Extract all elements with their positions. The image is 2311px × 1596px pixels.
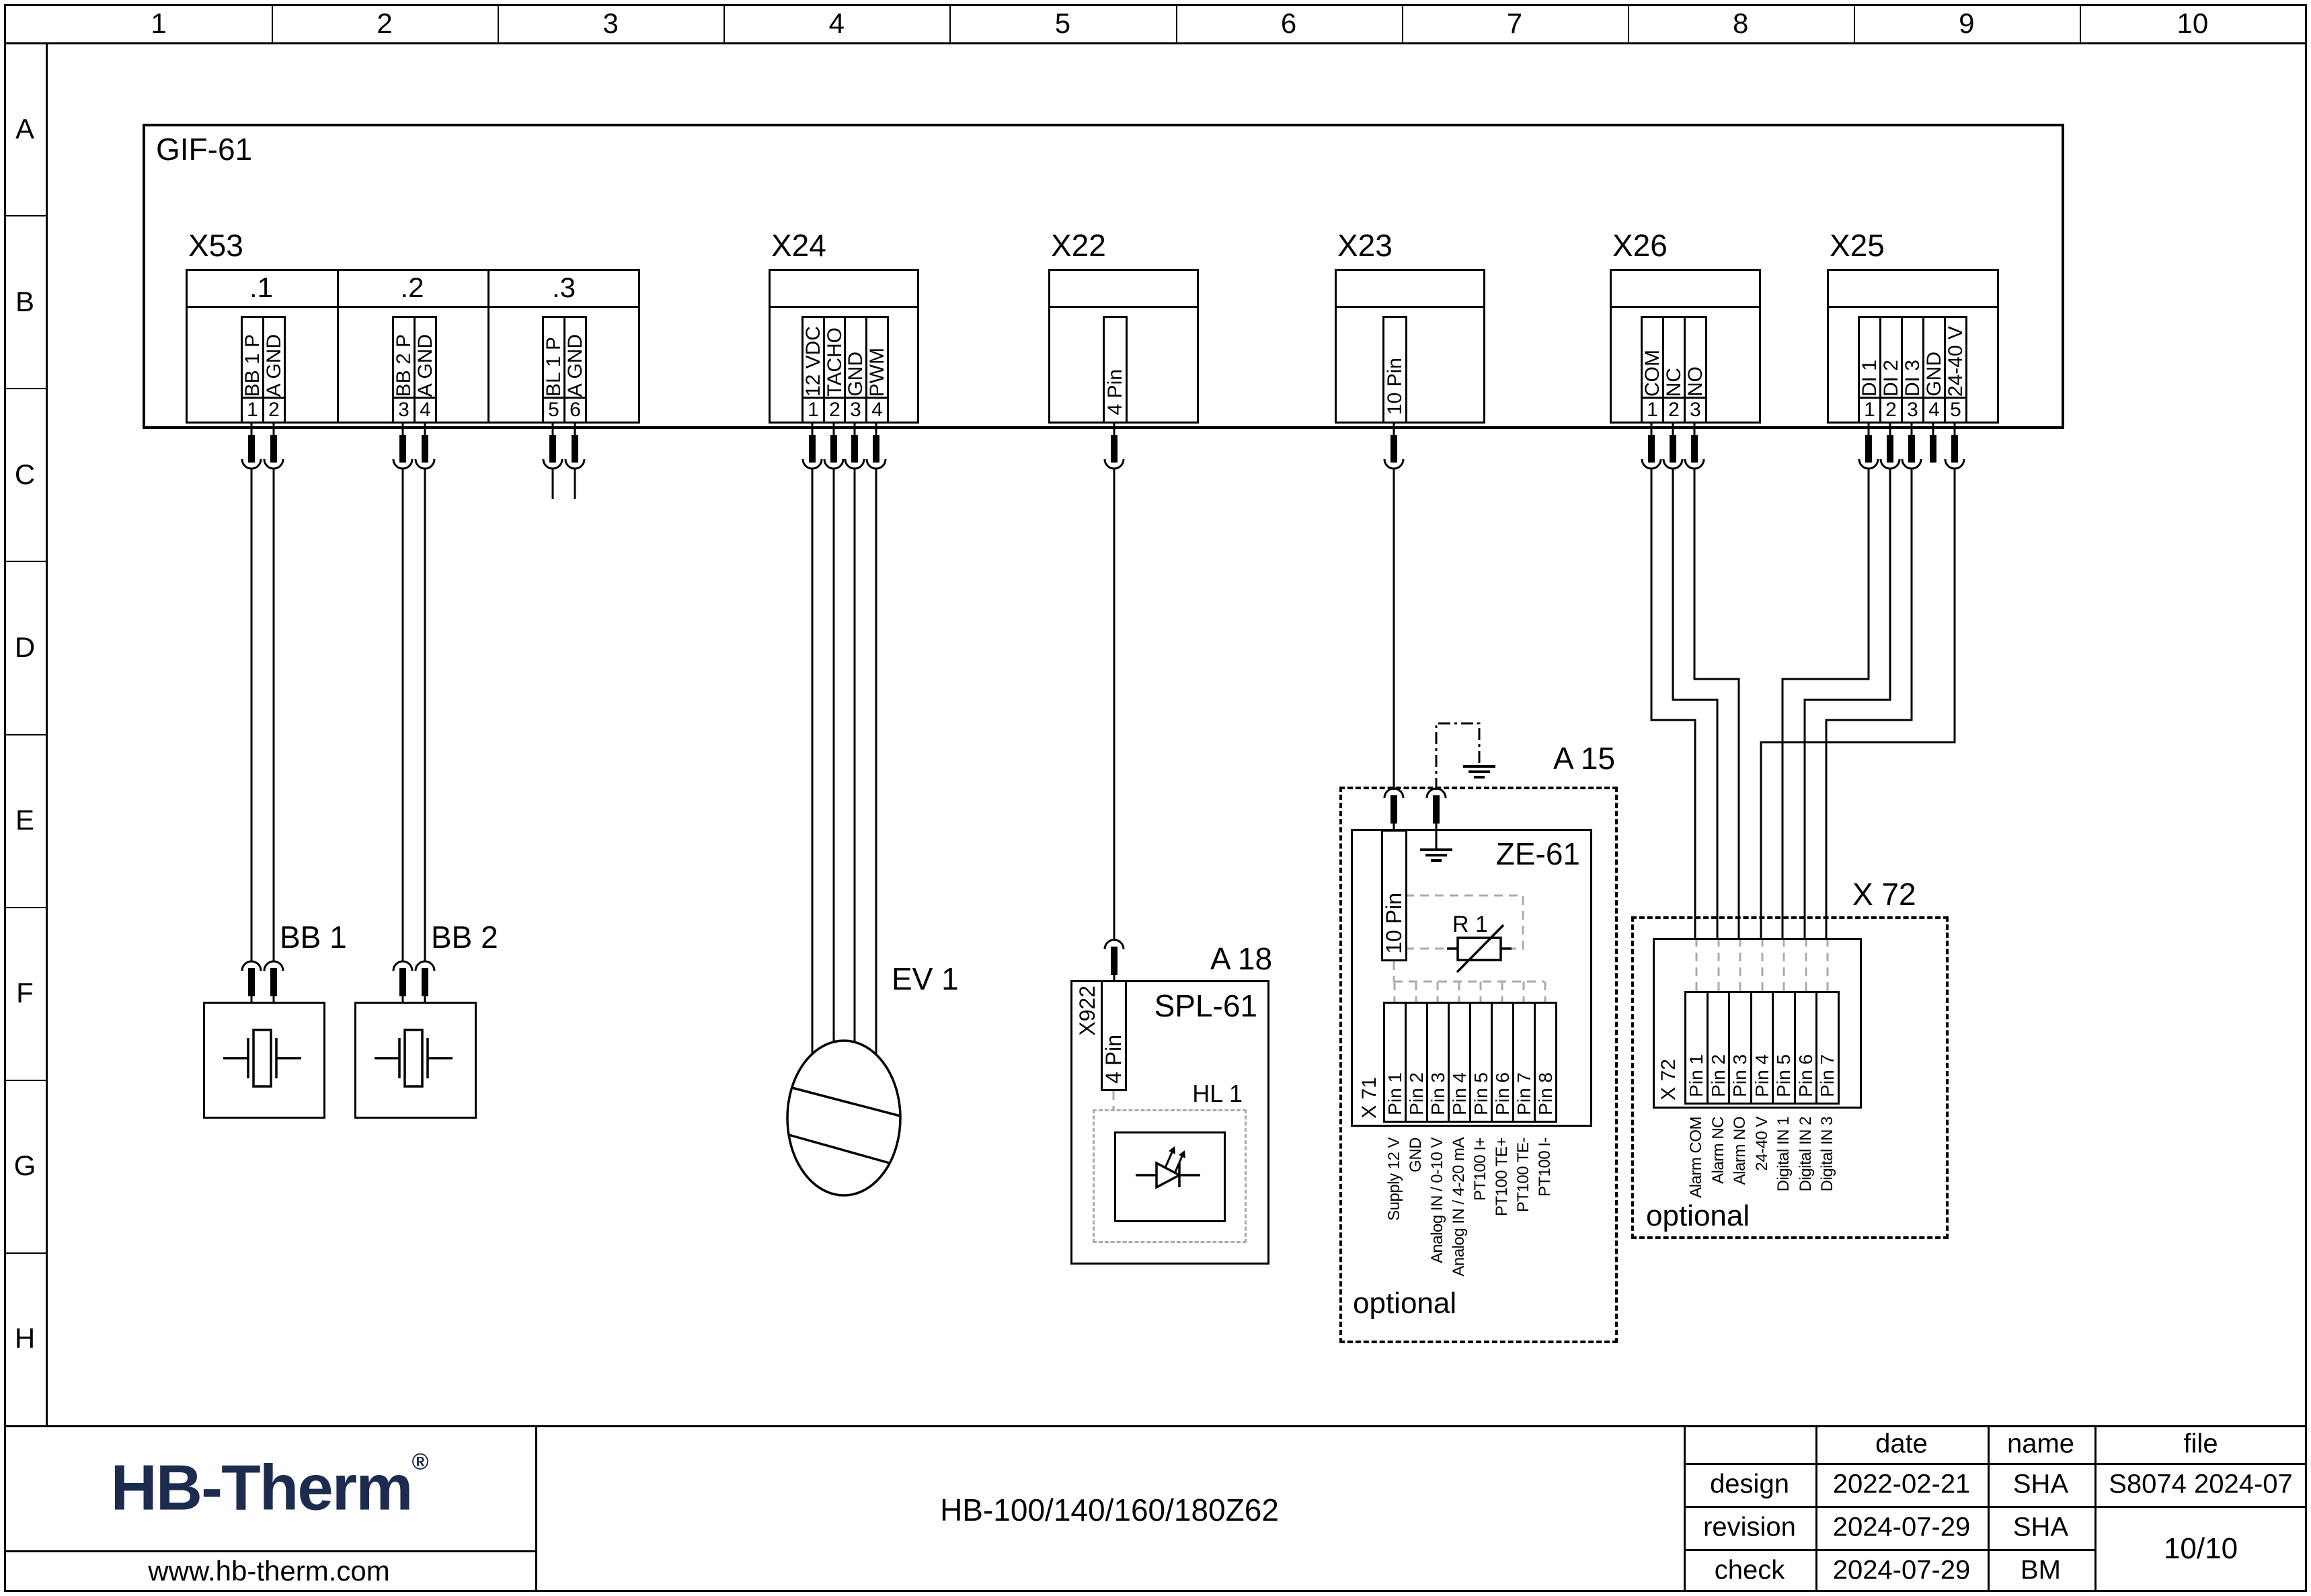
connector-X25-pin: DI 11 — [1858, 316, 1881, 424]
pin-label: Pin 8 — [1536, 1072, 1555, 1115]
connector-X24-pin: PWM4 — [865, 316, 889, 424]
pin-label-wrap: BB 1 P — [243, 318, 262, 397]
x72-connector-label: X 72 — [1657, 1059, 1680, 1101]
pin-label: Pin 7 — [1817, 1054, 1838, 1097]
pin-number: 5 — [1946, 397, 1965, 422]
drawing-title: HB-100/140/160/180Z62 — [940, 1492, 1279, 1528]
connector-X24-pin: 12 VDC1 — [801, 316, 825, 424]
row-design-name: SHA — [2013, 1470, 2068, 1500]
connector-X22-pin: 4 Pin — [1103, 316, 1128, 424]
connector-X25-pin: DI 33 — [1901, 316, 1924, 424]
column-ruler-cell: 5 — [949, 4, 1175, 42]
pin-label-wrap: Pin 3 — [1428, 1004, 1448, 1121]
pin-label-wrap: GND — [1924, 318, 1944, 397]
pin-label-wrap: Pin 2 — [1407, 1004, 1426, 1121]
pin-number: 2 — [1881, 397, 1901, 422]
row-ruler-cell: G — [4, 1080, 46, 1252]
connector-header-divider — [1048, 306, 1199, 308]
connector-X22-label: X22 — [1051, 229, 1106, 262]
x71-pin: Pin 5 — [1469, 1002, 1493, 1123]
connector-X24-label: X24 — [771, 229, 826, 262]
x71-function-text: PT100 TE+ — [1493, 1138, 1512, 1216]
pin-label: TACHO — [825, 327, 845, 397]
x72-function-text: Alarm COM — [1687, 1117, 1706, 1198]
website: www.hb-therm.com — [148, 1555, 389, 1587]
x72-function-label: Digital IN 1 — [1773, 1117, 1795, 1191]
x71-pin: Pin 7 — [1512, 1002, 1536, 1123]
pin-label-wrap: 10 Pin — [1384, 318, 1405, 422]
connector-X26-label: X26 — [1612, 229, 1668, 262]
connector-X23-pin: 10 Pin — [1382, 316, 1407, 424]
x72-function-label: Alarm NO — [1729, 1117, 1751, 1185]
pin-number: 4 — [867, 397, 887, 422]
x71-pin: Pin 1 — [1383, 1002, 1407, 1123]
row-check-name: BM — [2021, 1556, 2061, 1586]
row-revision-name: SHA — [2013, 1513, 2068, 1543]
row-ruler-cell: C — [4, 388, 46, 561]
x71-label: X 71 — [1358, 1077, 1381, 1119]
connector-header-divider — [186, 306, 640, 308]
pin-label-wrap: A GND — [264, 318, 284, 397]
column-ruler-cell: 9 — [1854, 4, 2080, 42]
pin-number: 6 — [565, 397, 585, 422]
pin-number: 3 — [1903, 397, 1922, 422]
x71-function-text: PT100 I- — [1536, 1138, 1555, 1197]
connector-X23-label: X23 — [1337, 229, 1393, 262]
connector-X25-pin: 24-40 V5 — [1944, 316, 1967, 424]
pin-label-wrap: COM — [1643, 318, 1662, 397]
connector-X26-pin: NO3 — [1684, 316, 1707, 424]
connector-X25-label: X25 — [1830, 229, 1885, 262]
pin-label: Pin 5 — [1471, 1072, 1491, 1115]
pin-number: 2 — [825, 397, 845, 422]
x72-pin: Pin 2 — [1707, 991, 1731, 1105]
column-ruler-cell: 7 — [1402, 4, 1628, 42]
pin-label: Pin 3 — [1730, 1054, 1750, 1097]
pin-label: Pin 5 — [1774, 1054, 1794, 1097]
pin-label-wrap: Pin 7 — [1817, 993, 1838, 1103]
pin-label-wrap: Pin 5 — [1774, 993, 1794, 1103]
pin-label-wrap: A GND — [416, 318, 435, 397]
x71-function-label: PT100 TE- — [1513, 1138, 1534, 1212]
x72-area-label: X 72 — [1852, 878, 1916, 910]
pin-label-wrap: A GND — [565, 318, 585, 397]
x71-pin: Pin 2 — [1405, 1002, 1428, 1123]
x71-function-text: Analog IN / 0-10 V — [1428, 1138, 1447, 1263]
pin-label: Pin 1 — [1686, 1054, 1707, 1097]
pin-label: Pin 1 — [1385, 1072, 1405, 1115]
x71-function-text: GND — [1407, 1138, 1425, 1172]
x71-label-wrap: X 71 — [1359, 1002, 1380, 1119]
x72-function-label: Alarm COM — [1686, 1117, 1707, 1198]
r1-label: R 1 — [1452, 913, 1488, 937]
ze-10pin-connector: 10 Pin — [1381, 830, 1407, 961]
row-design-file: S8074 2024-07 — [2109, 1470, 2293, 1500]
x922-connector: 4 Pin — [1101, 980, 1127, 1091]
row-ruler-cell: D — [4, 561, 46, 733]
connector-X53-pin: A GND2 — [262, 316, 286, 424]
x72-pin: Pin 1 — [1684, 991, 1709, 1105]
pin-label: Pin 2 — [1407, 1072, 1426, 1115]
hl1-inner-box — [1114, 1131, 1226, 1222]
pin-number: 3 — [394, 397, 414, 422]
x922-label: X922 — [1075, 986, 1100, 1036]
pin-label-wrap: NC — [1664, 318, 1684, 397]
pin-label-wrap: Pin 6 — [1796, 993, 1816, 1103]
hl1-label: HL 1 — [1143, 1081, 1243, 1107]
x72-function-label: Alarm NC — [1708, 1117, 1729, 1184]
pin-number: 4 — [416, 397, 435, 422]
connector-X24-pin: TACHO2 — [823, 316, 847, 424]
pin-label: 12 VDC — [804, 326, 823, 397]
pin-label-wrap: Pin 4 — [1752, 993, 1772, 1103]
pin-label-wrap: Pin 7 — [1514, 1004, 1534, 1121]
pin-label: Pin 4 — [1752, 1054, 1772, 1097]
pin-label: DI 2 — [1881, 360, 1901, 397]
x71-pin: Pin 3 — [1426, 1002, 1450, 1123]
row-design-label: design — [1710, 1470, 1789, 1500]
bb1-label: BB 1 — [280, 921, 347, 953]
pin-number: 1 — [243, 397, 262, 422]
connector-X53-label: X53 — [188, 229, 243, 262]
row-ruler-cell: H — [4, 1252, 46, 1425]
pin-label-wrap: BB 2 P — [394, 318, 414, 397]
pin-label-wrap: Pin 4 — [1450, 1004, 1469, 1121]
pin-label-wrap: 24-40 V — [1946, 318, 1965, 397]
bb2-label: BB 2 — [431, 921, 498, 953]
pin-number: 1 — [1643, 397, 1662, 422]
x71-function-text: PT100 I+ — [1471, 1138, 1490, 1201]
pin-label: NO — [1686, 366, 1705, 397]
row-ruler-cell: A — [4, 42, 46, 215]
x71-function-label: GND — [1405, 1138, 1427, 1172]
ruler-divider — [4, 42, 2307, 44]
pin-label: GND — [1924, 352, 1944, 397]
column-ruler-cell: 6 — [1176, 4, 1402, 42]
pin-label: BB 2 P — [394, 334, 414, 397]
gif-board-label: GIF-61 — [156, 133, 252, 165]
connector-X25-pin: DI 22 — [1879, 316, 1903, 424]
pin-label-wrap: DI 3 — [1903, 318, 1922, 397]
pin-number: 1 — [804, 397, 823, 422]
pin-label: Pin 7 — [1514, 1072, 1534, 1115]
bb2-box — [354, 1002, 477, 1119]
x72-pin: Pin 6 — [1794, 991, 1818, 1105]
pin-label: COM — [1643, 350, 1662, 397]
connector-header-divider — [769, 306, 919, 308]
pin-label-wrap: DI 1 — [1860, 318, 1879, 397]
connector-section-label: .1 — [186, 269, 337, 306]
connector-X26-pin: COM1 — [1641, 316, 1664, 424]
pin-label-wrap: Pin 2 — [1709, 993, 1729, 1103]
schematic-page: 12345678910ABCDEFGH GIF-61 X53.1.2.3BB 1… — [0, 0, 2311, 1596]
connector-X53-pin: BB 1 P1 — [241, 316, 264, 424]
row-ruler-cell: E — [4, 734, 46, 907]
x72-function-text: Digital IN 1 — [1774, 1117, 1793, 1191]
connector-section-label: .3 — [487, 269, 640, 306]
x71-pin: Pin 6 — [1491, 1002, 1514, 1123]
pin-label-wrap: NO — [1686, 318, 1705, 397]
row-design-date: 2022-02-21 — [1833, 1470, 1971, 1500]
pin-label: 10 Pin — [1384, 358, 1405, 415]
x72-function-text: Digital IN 2 — [1797, 1117, 1815, 1191]
x71-function-text: PT100 TE- — [1514, 1138, 1533, 1212]
header-file: file — [2183, 1429, 2218, 1460]
pin-label: Pin 6 — [1796, 1054, 1816, 1097]
connector-section-label: .2 — [337, 269, 487, 306]
pin-label-wrap: Pin 1 — [1686, 993, 1707, 1103]
pin-label: DI 1 — [1860, 360, 1879, 397]
pin-number: 2 — [264, 397, 284, 422]
connector-X53-pin: A GND4 — [414, 316, 437, 424]
connector-header-divider — [1827, 306, 1999, 308]
x72-function-text: Digital IN 3 — [1818, 1117, 1837, 1191]
pin-label-wrap: Pin 8 — [1536, 1004, 1555, 1121]
column-ruler-cell: 2 — [272, 4, 498, 42]
pin-label: 24-40 V — [1946, 326, 1965, 397]
x922-label-wrap: X922 — [1076, 986, 1098, 1086]
x71-function-text: Analog IN / 4-20 mA — [1450, 1138, 1468, 1277]
pin-label: DI 3 — [1903, 360, 1922, 397]
connector-X53-pin: BL 1 P5 — [542, 316, 565, 424]
pin-label: BB 1 P — [243, 334, 262, 397]
pin-number: 3 — [1686, 397, 1705, 422]
column-ruler-cell: 8 — [1628, 4, 1854, 42]
ruler-divider — [46, 42, 48, 1425]
ze-10pin-label: 10 Pin — [1383, 893, 1405, 954]
connector-X25-pin: GND4 — [1922, 316, 1946, 424]
column-ruler-cell: 10 — [2080, 4, 2306, 42]
x71-function-label: PT100 I+ — [1470, 1138, 1491, 1201]
x71-function-label: PT100 TE+ — [1491, 1138, 1513, 1216]
x71-function-label: Supply 12 V — [1384, 1138, 1405, 1221]
pin-number: 2 — [1664, 397, 1684, 422]
row-revision-date: 2024-07-29 — [1833, 1513, 1971, 1543]
pin-number: 3 — [846, 397, 865, 422]
row-ruler-cell: F — [4, 907, 46, 1080]
pin-label: A GND — [416, 334, 435, 397]
registered-mark-icon: ® — [412, 1449, 427, 1475]
pin-label: Pin 6 — [1493, 1072, 1512, 1115]
a18-label: A 18 — [1210, 943, 1272, 975]
x71-function-label: Analog IN / 4-20 mA — [1448, 1138, 1470, 1277]
pin-label-wrap: 12 VDC — [804, 318, 823, 397]
pin-label: A GND — [565, 334, 585, 397]
x72-function-label: 24-40 V — [1752, 1117, 1773, 1171]
pin-label-wrap: Pin 5 — [1471, 1004, 1491, 1121]
pin-label-wrap: Pin 1 — [1385, 1004, 1405, 1121]
header-date: date — [1875, 1429, 1928, 1460]
pin-label-wrap: 4 Pin — [1105, 318, 1126, 422]
page-number: 10/10 — [2164, 1532, 2238, 1566]
connector-X24-pin: GND3 — [844, 316, 867, 424]
pin-label: NC — [1664, 368, 1684, 397]
pin-label: A GND — [264, 334, 284, 397]
pin-label-wrap: DI 2 — [1881, 318, 1901, 397]
connector-X23-box — [1335, 269, 1485, 424]
row-check-date: 2024-07-29 — [1833, 1556, 1971, 1586]
pin-label: Pin 2 — [1709, 1054, 1729, 1097]
connector-X53-pin: A GND6 — [563, 316, 587, 424]
connector-X26-pin: NC2 — [1662, 316, 1686, 424]
x72-function-text: Alarm NO — [1731, 1117, 1750, 1185]
ev1-label: EV 1 — [892, 963, 959, 995]
x72-optional-label: optional — [1646, 1201, 1750, 1232]
a15-optional-label: optional — [1353, 1288, 1456, 1319]
x72-label-wrap: X 72 — [1658, 991, 1680, 1101]
pin-number: 1 — [1860, 397, 1879, 422]
row-revision-label: revision — [1703, 1513, 1796, 1543]
pin-label-wrap: PWM — [867, 318, 887, 397]
column-ruler-cell: 1 — [46, 4, 272, 42]
pin-label: PWM — [867, 348, 887, 397]
x71-function-text: Supply 12 V — [1385, 1138, 1404, 1221]
x72-function-text: 24-40 V — [1753, 1117, 1772, 1171]
pin-label-wrap: GND — [846, 318, 865, 397]
x72-pin: Pin 7 — [1815, 991, 1840, 1105]
x72-pin: Pin 4 — [1750, 991, 1774, 1105]
ze-module-label: ZE-61 — [1432, 838, 1580, 870]
pin-label-wrap: BL 1 P — [544, 318, 563, 397]
x72-function-text: Alarm NC — [1709, 1117, 1728, 1184]
column-ruler-cell: 4 — [723, 4, 949, 42]
pin-label: GND — [846, 352, 865, 397]
pin-label-wrap: TACHO — [825, 318, 845, 397]
x72-function-label: Digital IN 2 — [1795, 1117, 1817, 1191]
row-ruler-cell: B — [4, 215, 46, 388]
x922-pins-label: 4 Pin — [1103, 1035, 1125, 1084]
pin-label-wrap: Pin 6 — [1493, 1004, 1512, 1121]
x71-function-label: PT100 I- — [1534, 1138, 1556, 1197]
pin-label: 4 Pin — [1105, 369, 1126, 415]
x71-function-label: Analog IN / 0-10 V — [1427, 1138, 1448, 1263]
pin-label: Pin 4 — [1450, 1072, 1469, 1115]
a15-label: A 15 — [1553, 742, 1615, 774]
x71-pin: Pin 8 — [1534, 1002, 1557, 1123]
connector-header-divider — [1335, 306, 1485, 308]
row-check-label: check — [1715, 1556, 1785, 1586]
connector-header-divider — [1610, 306, 1761, 308]
header-name: name — [2007, 1429, 2074, 1460]
bb1-box — [203, 1002, 325, 1119]
pin-number: 5 — [544, 397, 563, 422]
x71-pin: Pin 4 — [1448, 1002, 1471, 1123]
pin-number: 4 — [1924, 397, 1944, 422]
connector-X53-pin: BB 2 P3 — [392, 316, 416, 424]
pin-label-wrap: Pin 3 — [1730, 993, 1750, 1103]
logo: HB-Therm® — [110, 1449, 427, 1525]
x72-pin: Pin 5 — [1772, 991, 1796, 1105]
x72-pin: Pin 3 — [1728, 991, 1752, 1105]
column-ruler-cell: 3 — [498, 4, 723, 42]
pin-label: BL 1 P — [544, 337, 563, 397]
x72-function-label: Digital IN 3 — [1817, 1117, 1838, 1191]
pin-label: Pin 3 — [1428, 1072, 1448, 1115]
